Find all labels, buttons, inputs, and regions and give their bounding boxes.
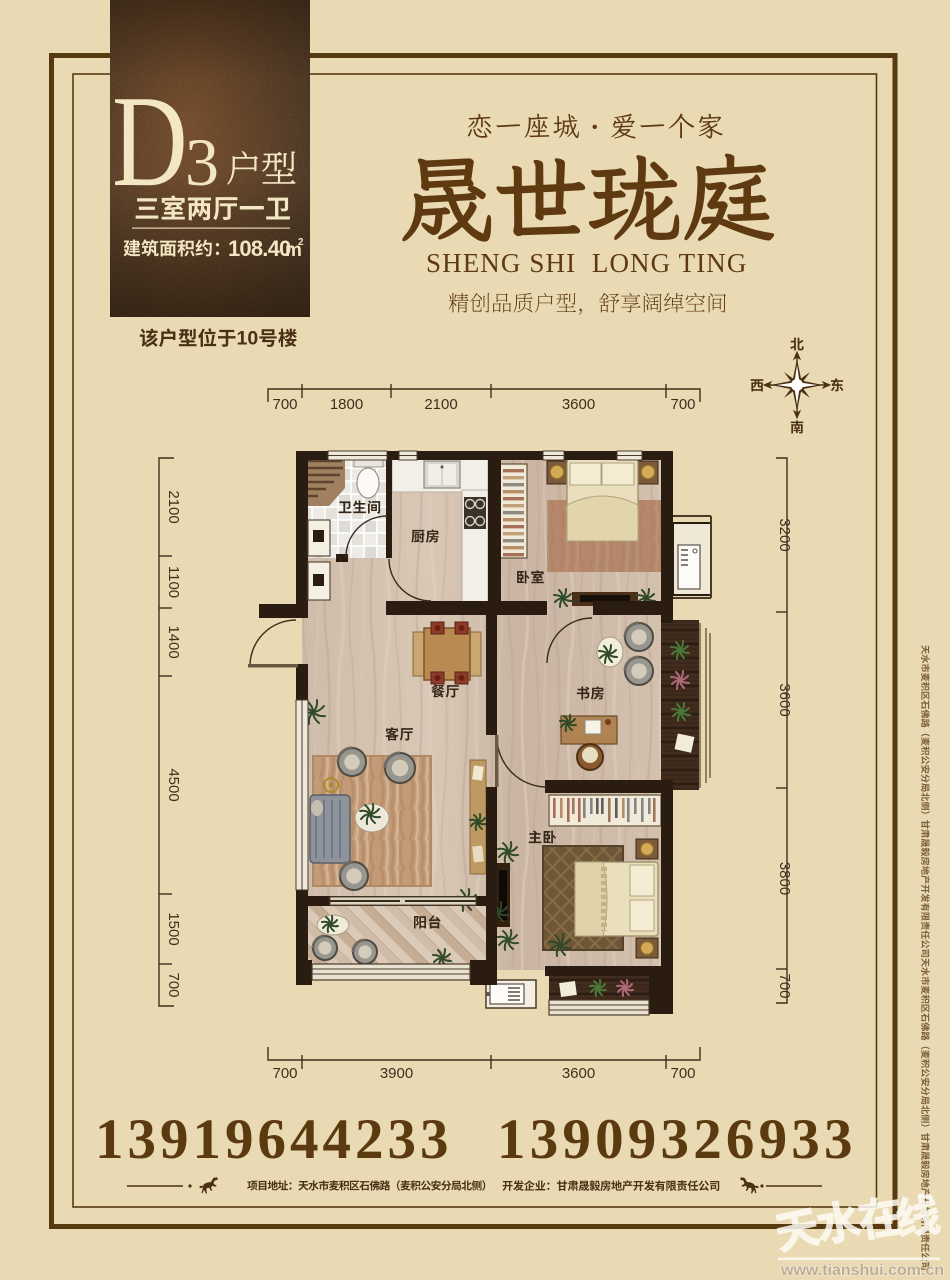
svg-text:1500: 1500	[165, 912, 182, 945]
svg-text:2100: 2100	[424, 396, 457, 413]
svg-text:3: 3	[185, 124, 219, 200]
svg-text:3900: 3900	[380, 1065, 413, 1082]
svg-text:1100: 1100	[165, 566, 182, 598]
svg-text:2100: 2100	[165, 490, 182, 523]
svg-text:700: 700	[272, 396, 297, 413]
svg-text:700: 700	[670, 1065, 695, 1082]
svg-text:1400: 1400	[165, 625, 182, 658]
svg-text:0: 0	[247, 328, 258, 350]
svg-text:2: 2	[298, 237, 304, 248]
svg-text:3600: 3600	[776, 683, 793, 716]
svg-text:4500: 4500	[165, 768, 182, 801]
svg-text:108.40: 108.40	[228, 236, 291, 261]
svg-text:3600: 3600	[562, 1065, 595, 1082]
svg-text:700: 700	[272, 1065, 297, 1082]
svg-text:700: 700	[165, 972, 182, 997]
svg-text:700: 700	[776, 973, 793, 998]
svg-text:www.tianshui.com.cn: www.tianshui.com.cn	[780, 1262, 944, 1279]
svg-text:1: 1	[237, 328, 248, 350]
svg-text:13909326933: 13909326933	[497, 1108, 857, 1171]
svg-text:700: 700	[670, 396, 695, 413]
svg-text:3800: 3800	[776, 862, 793, 895]
svg-text:D: D	[112, 68, 188, 214]
svg-text:13919644233: 13919644233	[95, 1108, 453, 1171]
svg-text:3600: 3600	[562, 396, 595, 413]
svg-text:SHENG SHI LONG TING: SHENG SHI LONG TING	[426, 248, 748, 278]
svg-text:3200: 3200	[776, 518, 793, 551]
svg-text:1800: 1800	[330, 396, 363, 413]
